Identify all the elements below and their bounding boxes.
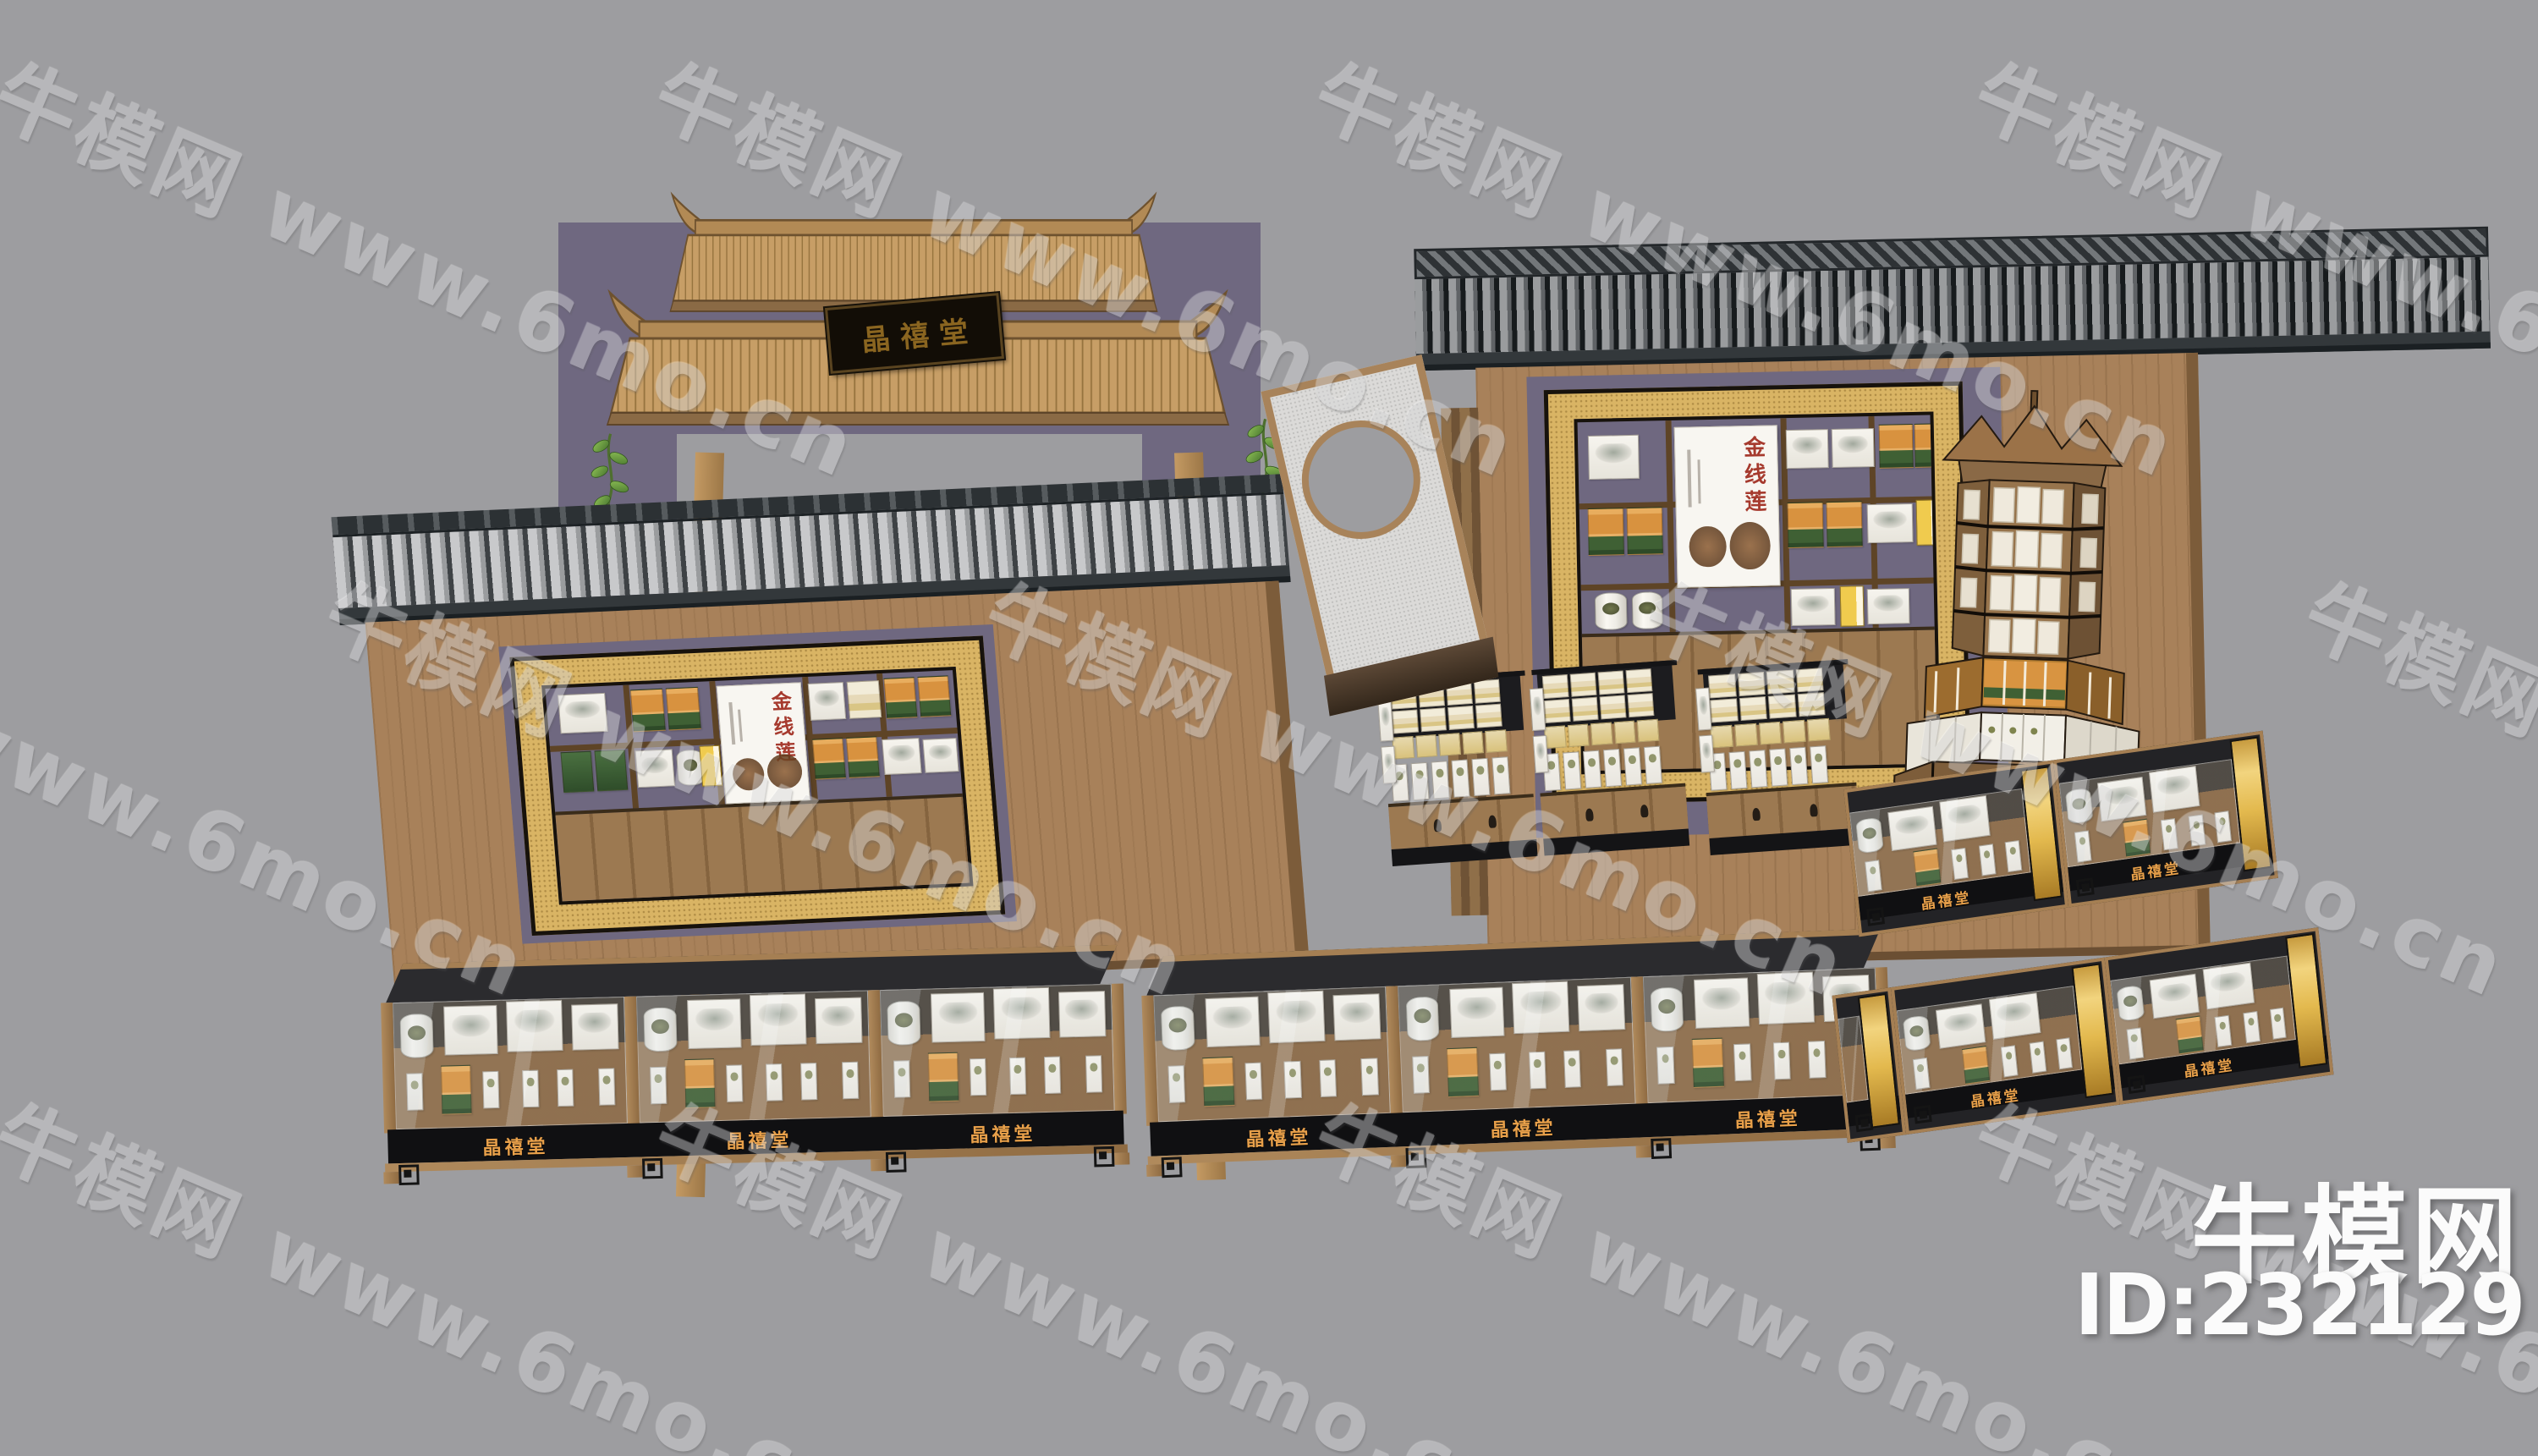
product-box-cream xyxy=(1600,695,1627,719)
product-pack xyxy=(1431,761,1450,799)
product-box-cream xyxy=(1567,723,1589,747)
product-pack xyxy=(1749,750,1767,788)
counter-glass xyxy=(636,990,871,1123)
product-box-cream xyxy=(1475,704,1502,728)
product-box-orange xyxy=(846,736,880,778)
product-pack xyxy=(1603,749,1622,787)
product-box-cream xyxy=(1392,710,1419,734)
product-box-white xyxy=(808,682,846,721)
poster-text-line xyxy=(728,702,735,744)
poster-text-line xyxy=(1688,450,1692,508)
product-box-cyl xyxy=(1632,591,1663,629)
product-box-cream xyxy=(1614,721,1636,744)
greek-key-ornament xyxy=(1914,1105,1932,1124)
door-handle xyxy=(1640,805,1649,818)
counter-brand-label: 晶禧堂 xyxy=(464,1131,567,1161)
product-box-cream xyxy=(1544,725,1566,749)
product-box-white xyxy=(1786,429,1829,469)
product-box-cream xyxy=(1420,707,1447,732)
product-pack xyxy=(1728,751,1747,789)
product-box-orange xyxy=(1627,507,1663,555)
product-box-white xyxy=(1791,588,1836,626)
gondola-stock-top xyxy=(1708,668,1828,724)
herb-poster-left: 金线莲 xyxy=(717,682,810,804)
product-box-cream xyxy=(1542,674,1569,699)
product-box-orange xyxy=(812,738,846,780)
product-pack xyxy=(1810,745,1828,783)
stage: 晶禧堂 xyxy=(0,0,2538,1456)
counter-bay xyxy=(393,997,628,1129)
product-box-cream xyxy=(1768,695,1796,719)
product-pack xyxy=(1451,760,1470,798)
counter-foot xyxy=(871,1159,886,1171)
product-box-orange xyxy=(1827,501,1863,547)
roof-fascia xyxy=(607,413,1228,425)
door-handle xyxy=(1752,808,1761,821)
product-box-orange xyxy=(917,675,951,717)
product-box-cream xyxy=(1797,692,1825,717)
product-box-orange xyxy=(666,687,701,731)
product-box-cream xyxy=(1626,668,1653,693)
greek-key-ornament xyxy=(886,1151,907,1173)
counter-glass xyxy=(393,997,628,1129)
product-pack xyxy=(1583,750,1601,788)
product-shelf-case-left: 金线莲 xyxy=(541,667,973,905)
greek-key-ornament xyxy=(1094,1146,1115,1168)
gondola-stock-top xyxy=(1542,668,1657,725)
door-handle xyxy=(1488,815,1497,828)
product-pack xyxy=(1623,747,1642,785)
product-box-white xyxy=(882,738,921,775)
product-box-cream xyxy=(1486,729,1508,753)
tower-pagoda-crown xyxy=(1943,387,2124,488)
product-box-cream xyxy=(1598,670,1625,695)
gondola-module xyxy=(1380,671,1538,868)
display-counter-module: 晶禧堂 xyxy=(1843,760,2068,937)
display-counter-module: 晶禧堂 xyxy=(2053,731,2278,908)
product-box-cream xyxy=(1708,673,1736,698)
display-counter-module: 晶禧堂 xyxy=(2105,927,2334,1105)
counter-brand-label: 晶禧堂 xyxy=(952,1118,1054,1148)
product-box-cream xyxy=(1795,668,1823,692)
octagonal-display-tower xyxy=(1881,377,2174,810)
product-box-cream xyxy=(1766,670,1794,695)
product-box-green xyxy=(594,750,628,792)
greek-key-ornament xyxy=(1162,1157,1183,1178)
greek-key-ornament xyxy=(1854,1113,1873,1133)
counter-foot xyxy=(1391,1155,1407,1168)
poster-herb-photo xyxy=(731,757,765,791)
counter-brand-label: 晶禧堂 xyxy=(1717,1102,1819,1134)
product-box-cream xyxy=(1572,697,1599,722)
counter-foot xyxy=(383,1172,398,1184)
greek-key-ornament xyxy=(1406,1147,1427,1168)
display-counter-row-left: 晶禧堂晶禧堂晶禧堂 xyxy=(380,945,1128,1176)
greek-key-ornament xyxy=(1651,1138,1672,1159)
poster-herb-photo xyxy=(1729,521,1771,569)
greek-key-ornament xyxy=(642,1158,663,1179)
product-box-white xyxy=(635,749,675,788)
gondola-island-2 xyxy=(1697,659,1860,857)
product-box-cream xyxy=(1759,722,1783,745)
product-box-white xyxy=(1588,435,1640,480)
counter-bay xyxy=(880,984,1115,1117)
model-id-text: ID:232129 xyxy=(2074,1255,2524,1354)
poster-text-line xyxy=(1698,459,1701,504)
counter-glass xyxy=(1153,986,1391,1122)
counter-bay xyxy=(636,990,871,1123)
product-box-cream xyxy=(1392,736,1414,760)
product-pack xyxy=(1411,762,1430,800)
lower-cabinet xyxy=(555,793,973,904)
product-box-orange xyxy=(1588,508,1624,556)
product-pack xyxy=(1491,756,1510,794)
product-box-cream xyxy=(1590,723,1612,746)
left-display-frame: 金线莲 xyxy=(509,636,1005,937)
product-box-cream xyxy=(1734,723,1758,747)
poster-text-line xyxy=(738,709,743,742)
product-pack xyxy=(1471,758,1490,796)
product-box-cream xyxy=(1448,706,1475,730)
product-box-white xyxy=(1832,428,1875,468)
product-box-cyl xyxy=(1595,592,1628,630)
display-wall-left: 金线莲 xyxy=(332,474,1323,1023)
product-box-cream xyxy=(1544,699,1571,723)
tower-graphic xyxy=(1881,377,2174,810)
greek-key-ornament xyxy=(2076,877,2095,897)
product-box-white xyxy=(1533,735,1549,773)
herb-poster-right: 金线莲 xyxy=(1674,425,1781,588)
greek-key-ornament xyxy=(1866,907,1885,926)
roof-ridge-beam xyxy=(695,220,1132,235)
product-box-white xyxy=(1530,688,1546,731)
product-box-cream xyxy=(1637,719,1659,743)
product-box-cream xyxy=(1710,698,1738,723)
product-box-cream xyxy=(1570,673,1597,697)
counter-foot xyxy=(1146,1164,1162,1177)
counter-foot xyxy=(1114,1152,1129,1164)
door-handle xyxy=(1433,819,1442,832)
product-box-white xyxy=(1381,746,1397,784)
counter-glass xyxy=(880,984,1115,1117)
product-box-cream xyxy=(1807,718,1831,742)
product-box-cream xyxy=(1710,725,1733,749)
greek-key-ornament xyxy=(2127,1074,2145,1094)
poster-herb-photo xyxy=(1689,525,1727,568)
product-box-cream xyxy=(1462,731,1484,755)
product-box-white xyxy=(1699,734,1715,772)
counter-glass xyxy=(1398,977,1635,1113)
product-box-cream xyxy=(1474,679,1501,704)
counter-bay xyxy=(1153,986,1391,1122)
product-box-cream xyxy=(1415,734,1437,758)
product-box-white xyxy=(922,738,959,773)
product-box-yellow xyxy=(1840,585,1865,627)
door-handle xyxy=(1585,808,1593,821)
product-box-white xyxy=(1377,699,1393,742)
greek-key-ornament xyxy=(398,1164,420,1185)
product-box-green xyxy=(561,751,595,794)
product-pack xyxy=(1644,746,1662,784)
product-box-cream xyxy=(847,680,882,719)
product-box-cream xyxy=(1438,733,1460,756)
product-box-yellow xyxy=(699,745,722,787)
counter-brand-label: 晶禧堂 xyxy=(1228,1122,1330,1153)
product-box-white xyxy=(558,693,608,733)
plaque-text: 晶禧堂 xyxy=(849,307,980,360)
gondola-module xyxy=(1697,659,1860,857)
display-counter-row-middle: 晶禧堂晶禧堂晶禧堂 xyxy=(1140,928,1894,1168)
product-box-cream xyxy=(1739,696,1766,721)
display-counter-module: 晶禧堂 xyxy=(1891,958,2120,1135)
counter-foot xyxy=(627,1165,642,1177)
product-pack xyxy=(1789,747,1808,785)
poster-title: 金线莲 xyxy=(1737,436,1770,518)
door-handle xyxy=(1810,804,1818,817)
product-box-orange xyxy=(1788,502,1824,548)
counter-bay xyxy=(1398,977,1635,1113)
product-box-cream xyxy=(1783,720,1806,744)
counter-brand-label: 晶禧堂 xyxy=(1472,1112,1574,1143)
product-box-orange xyxy=(630,689,666,733)
product-box-cream xyxy=(1737,672,1765,696)
product-box-white xyxy=(1695,688,1711,731)
product-box-orange xyxy=(884,677,918,719)
counter-brand-label: 晶禧堂 xyxy=(708,1124,810,1154)
counter-foot xyxy=(1635,1146,1651,1158)
product-pack xyxy=(1769,748,1788,786)
product-box-cream xyxy=(1628,693,1655,717)
gondola-module xyxy=(1531,660,1689,857)
product-pack xyxy=(1563,751,1581,789)
